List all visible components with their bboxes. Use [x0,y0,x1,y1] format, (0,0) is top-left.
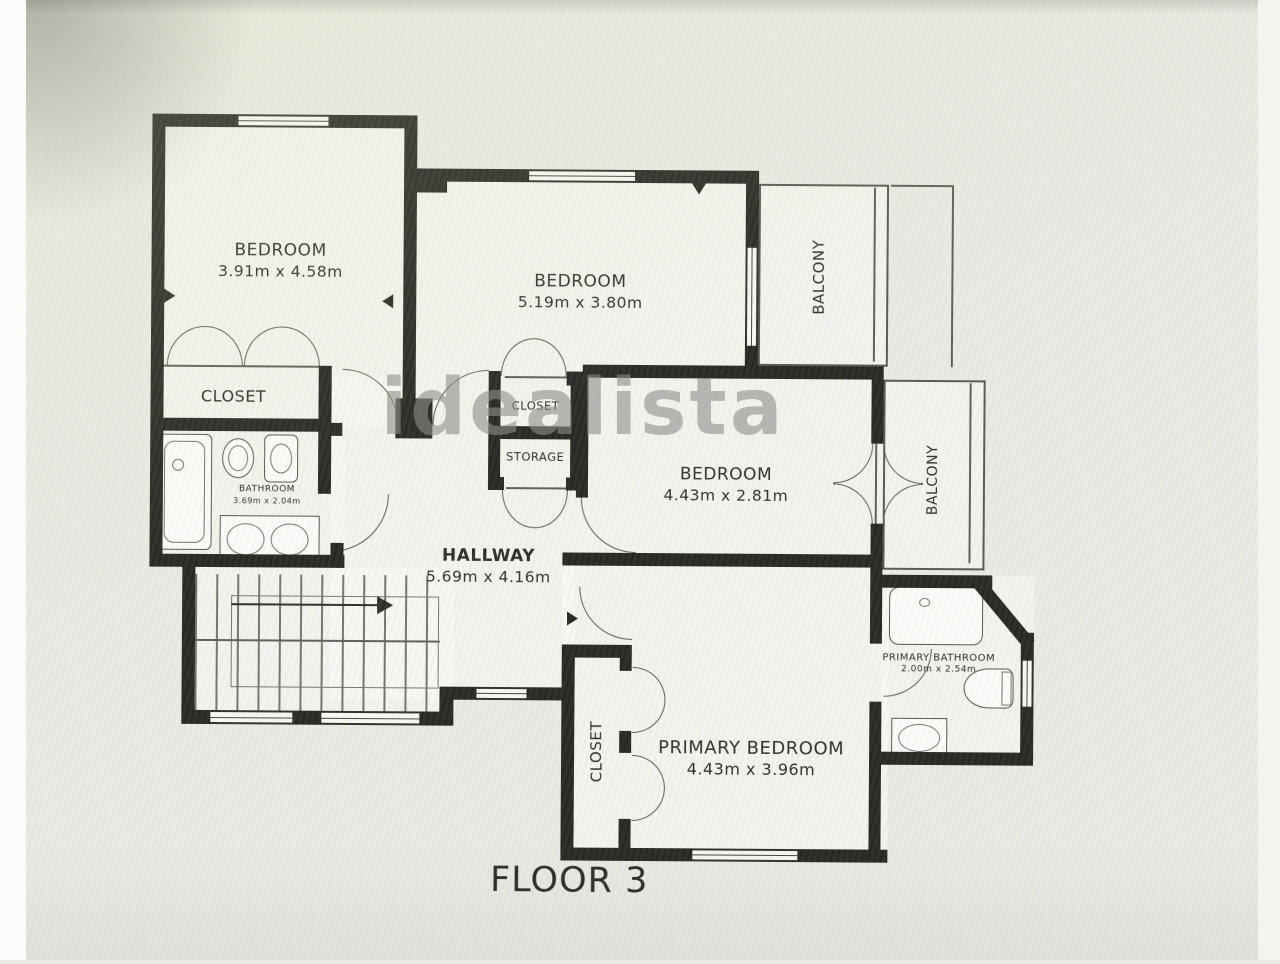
window [476,687,526,700]
marker-triangle-icon [164,289,175,303]
wall [870,524,882,568]
room-label-bedroom3: BEDROOM 4.43m x 2.81m [663,463,788,506]
room-dims: 5.19m x 3.80m [518,292,643,313]
toilet-tank [1001,672,1011,706]
wall [152,114,240,128]
window [210,710,292,725]
window [1020,661,1033,707]
room-dims: 3.91m x 4.58m [218,261,343,282]
window [321,711,419,726]
room-label-primary-bathroom: PRIMARY BATHROOM 2.00m x 2.54m [882,651,995,676]
wall [562,552,882,567]
wall [445,169,529,183]
room-name: BEDROOM [218,239,343,262]
wall [488,477,504,490]
photo-background: BEDROOM 3.91m x 4.58m BEDROOM 5.19m x 3.… [0,0,1280,960]
wall [635,170,759,184]
wall [881,752,1033,766]
room-name: BEDROOM [518,270,643,293]
wall [746,171,760,248]
terrace-outline-top [891,185,954,187]
marker-triangle-icon [692,183,706,194]
room-label-primary-closet: CLOSET [587,721,607,782]
room-dims: 4.43m x 2.81m [663,485,788,506]
bathtub-drain-icon [172,459,184,471]
room-dims: 5.69m x 4.16m [426,566,551,587]
room-dims: 3.69m x 2.04m [233,496,301,507]
stair-rail [231,595,440,688]
room-label-balcony-right: BALCONY [924,445,943,515]
storage-front-line [506,487,566,489]
wall [797,849,887,863]
wall [318,432,331,494]
terrace-outline-right [951,185,954,367]
shower-drain-icon [919,598,930,607]
photo-edge-left [0,0,26,960]
toilet-bowl-inner [228,445,248,471]
wall [560,847,692,861]
marker-triangle-icon [823,849,837,860]
bathtub-inner [164,441,206,543]
room-label-bathroom: BATHROOM 3.69m x 2.04m [233,484,301,507]
room-label-closet1: CLOSET [201,387,266,408]
photo-edge-right [1258,0,1280,960]
wall [318,423,342,436]
window [529,169,635,183]
sink-icon [270,523,308,555]
room-name: PRIMARY BEDROOM [658,736,844,761]
room-label-bedroom1: BEDROOM 3.91m x 4.58m [218,239,343,282]
wall [439,687,476,700]
room-label-balcony-top: BALCONY [809,240,829,315]
sink-icon [226,523,264,555]
window [692,848,797,862]
watermark: idealista [381,363,786,453]
floor-label: FLOOR 3 [490,860,648,901]
wall [560,644,575,860]
wall [330,543,343,568]
room-dims: 2.00m x 2.54m [882,664,995,676]
marker-triangle-icon [567,611,578,625]
room-dims: 4.43m x 3.96m [658,759,844,781]
room-name: BEDROOM [664,463,789,486]
room-name: HALLWAY [426,544,551,567]
wall [871,380,883,444]
room-label-hallway: HALLWAY 5.69m x 4.16m [426,544,551,587]
wall [1021,633,1034,661]
wall [620,645,632,671]
shower-tray-icon [889,587,983,646]
wall [868,702,881,850]
wall [150,418,331,432]
wall [181,567,195,724]
bidet-inner [270,443,292,473]
floor-plan: BEDROOM 3.91m x 4.58m BEDROOM 5.19m x 3.… [0,0,1280,964]
window [238,114,330,128]
marker-triangle-icon [382,294,393,308]
room-name: PRIMARY BATHROOM [882,651,995,665]
stair-direction-arrow-icon [377,596,393,614]
wall [619,731,631,753]
room-name: BATHROOM [233,484,301,496]
room-label-primary-bedroom: PRIMARY BEDROOM 4.43m x 3.96m [658,736,844,781]
balcony-door-window [745,248,759,346]
sink-icon [898,724,940,752]
wall [149,554,344,568]
room-label-bedroom2: BEDROOM 5.19m x 3.80m [518,270,643,313]
wall [870,568,883,644]
wall [417,168,447,192]
